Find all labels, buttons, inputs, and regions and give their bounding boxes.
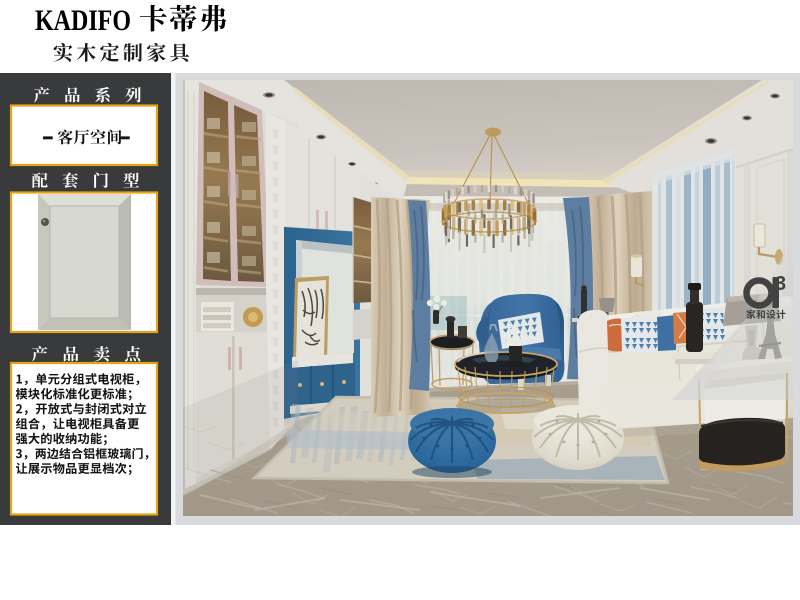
svg-text:KADIFO: KADIFO	[35, 4, 131, 37]
